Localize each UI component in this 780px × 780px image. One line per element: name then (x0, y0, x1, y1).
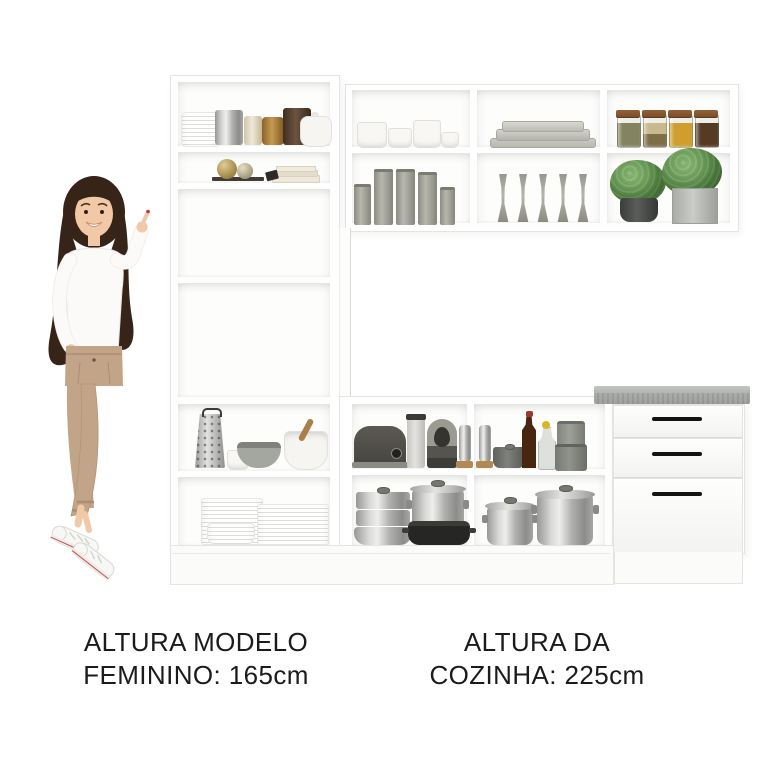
steamer-tier (356, 510, 410, 526)
granite-countertop-edge (594, 393, 750, 404)
box-grater (195, 414, 225, 468)
pot-knob (504, 497, 517, 504)
tall-shelf-4 (178, 283, 330, 397)
spice-jar-lid (616, 110, 640, 118)
connector-panel (339, 228, 351, 398)
model-height-caption: ALTURA MODELO FEMININO: 165cm (36, 626, 356, 692)
cup (441, 132, 459, 148)
pepper-mill (459, 425, 471, 462)
model-trousers (65, 346, 123, 516)
spice-jar (617, 114, 641, 148)
drawer-1 (613, 405, 743, 438)
kitchen-height-caption: ALTURA DA COZINHA: 225cm (377, 626, 697, 692)
espresso-machine-front (434, 427, 450, 447)
bowl-stack (207, 523, 255, 545)
pot-handle (531, 505, 537, 514)
kitchen-height-line2: COZINHA: 225cm (377, 659, 697, 692)
canister-lid (406, 414, 426, 420)
pillar-candle (396, 169, 415, 225)
model-neck (88, 232, 100, 246)
cup-stack (413, 120, 441, 148)
spice-jar-lid (642, 110, 666, 118)
decor-sphere-gold (217, 159, 237, 179)
pan-handle (469, 528, 476, 533)
large-pot-with-lid (537, 495, 593, 545)
toaster-dial (391, 448, 402, 459)
drawer-handle (652, 452, 702, 456)
drawer-plinth (614, 552, 743, 584)
female-model (4, 170, 166, 600)
drawer-handle (652, 492, 702, 496)
large-pot-knob (559, 485, 573, 492)
drawer-3 (613, 478, 743, 553)
pillar-candle (374, 169, 393, 225)
steamer-tier (356, 492, 410, 509)
pearl-canister (244, 116, 262, 145)
model-height-line1: ALTURA MODELO (36, 626, 356, 659)
white-mixing-bowl (284, 431, 328, 470)
pepper-mill (479, 425, 491, 462)
steamer-knob (377, 487, 390, 494)
decor-sphere-champagne (237, 163, 253, 179)
spice-jar (669, 114, 693, 148)
pot-with-lid (487, 507, 533, 545)
large-plate-stack (257, 504, 329, 545)
grater-handle (202, 408, 222, 417)
drawer-2 (613, 438, 743, 478)
teapot-lid-knob (311, 112, 319, 117)
cup-stack (357, 122, 387, 148)
pot-handle (463, 500, 469, 509)
tall-shelf-3 (178, 189, 330, 277)
amber-jar (262, 117, 284, 145)
pan-handle (402, 528, 409, 533)
pillar-candle (440, 187, 455, 225)
plant-pot-round (620, 198, 658, 222)
model-nail (146, 210, 150, 214)
black-roasting-pan (408, 521, 470, 545)
plant-pot-square (672, 188, 718, 224)
mill-wood-base (456, 461, 473, 468)
yellow-stopper (542, 421, 550, 429)
silver-canister (215, 110, 243, 145)
granite-countertop (594, 386, 750, 393)
spice-jar (695, 114, 719, 148)
white-teapot (300, 116, 332, 147)
plinth-line (172, 553, 610, 554)
toaster-base (352, 462, 408, 468)
spice-jar-lid (694, 110, 718, 118)
saucepan-knob (505, 444, 515, 450)
pot-handle (482, 515, 488, 523)
gray-canister-bottom (555, 444, 587, 471)
book (276, 166, 316, 172)
pot-handle (406, 500, 412, 509)
kitchen-height-line1: ALTURA DA (377, 626, 697, 659)
bottle-cap-red (526, 411, 533, 417)
small-saucepan (493, 447, 525, 468)
pillar-candle (354, 184, 371, 225)
decor-tray (212, 177, 264, 181)
base-plinth (170, 545, 614, 585)
model-height-line2: FEMININO: 165cm (36, 659, 356, 692)
mill-wood-base (476, 461, 493, 468)
cup-stack (388, 128, 412, 148)
platter-top (502, 121, 584, 132)
spice-jar-lid (668, 110, 692, 118)
product-image: ALTURA MODELO FEMININO: 165cm ALTURA DA … (0, 0, 780, 780)
pot-handle (593, 505, 599, 514)
drawer-handle (652, 417, 702, 421)
pillar-candle (418, 172, 437, 225)
counter-canister (407, 417, 425, 468)
spice-jar (643, 114, 667, 148)
stock-pot-knob (431, 480, 445, 487)
